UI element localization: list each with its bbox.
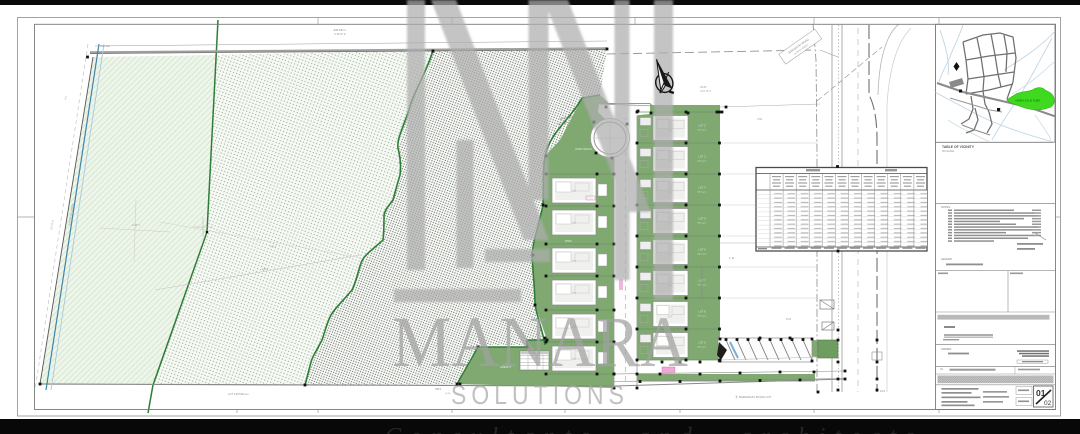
svg-text:180 sq.m.: 180 sq.m. xyxy=(697,316,707,318)
svg-text:46.3: 46.3 xyxy=(65,95,68,100)
svg-text:338.9: 338.9 xyxy=(435,388,442,391)
svg-text:180 sq.m.: 180 sq.m. xyxy=(697,161,707,163)
svg-text:336.58 m.: 336.58 m. xyxy=(333,28,347,32)
svg-text:Consultants and architects: Consultants and architects xyxy=(385,424,923,434)
svg-text:180 sq.m.: 180 sq.m. xyxy=(697,254,707,256)
svg-text:8.00: 8.00 xyxy=(786,317,792,321)
svg-text:02: 02 xyxy=(1044,400,1052,407)
svg-text:245.0: 245.0 xyxy=(262,268,269,271)
svg-text:LOT 2-B PSD-xxx: LOT 2-B PSD-xxx xyxy=(228,392,249,396)
svg-text:Ⓢ BARANGAY ROAD LOT: Ⓢ BARANGAY ROAD LOT xyxy=(735,394,772,399)
svg-text:LOT 9: LOT 9 xyxy=(698,341,706,345)
svg-text:180 sq.m.: 180 sq.m. xyxy=(697,130,707,132)
svg-text:PARK: PARK xyxy=(565,239,572,243)
svg-text:TIE LINE: TIE LINE xyxy=(100,45,110,48)
svg-text:1ST: 1ST xyxy=(572,292,577,295)
svg-text:LOT 8: LOT 8 xyxy=(698,310,706,314)
svg-text:36.80: 36.80 xyxy=(700,85,707,89)
svg-text:4.50: 4.50 xyxy=(757,117,763,121)
svg-text:NO SCALE: NO SCALE xyxy=(942,150,954,153)
svg-text:24.5: 24.5 xyxy=(880,389,886,393)
svg-text:N 88 45' E: N 88 45' E xyxy=(334,33,345,36)
svg-text:LOT 1: LOT 1 xyxy=(132,223,140,227)
svg-text:1ST: 1ST xyxy=(572,260,577,263)
svg-text:OPEN SPACE: OPEN SPACE xyxy=(575,147,592,151)
svg-text:VERBA SOLIS SUBD.: VERBA SOLIS SUBD. xyxy=(1015,99,1041,103)
svg-text:MANARA: MANARA xyxy=(392,302,688,382)
svg-text:LEGEND:: LEGEND: xyxy=(941,257,953,261)
svg-text:LOT 3: LOT 3 xyxy=(698,155,706,159)
svg-text:NOTES:: NOTES: xyxy=(941,205,951,209)
svg-text:TABLE OF VICINITY: TABLE OF VICINITY xyxy=(942,145,975,149)
svg-text:LOT 4: LOT 4 xyxy=(698,186,706,190)
svg-text:180 sq.m.: 180 sq.m. xyxy=(697,223,707,225)
svg-text:S 01 15' E: S 01 15' E xyxy=(700,90,711,93)
svg-text:180 sq.m.: 180 sq.m. xyxy=(697,347,707,349)
svg-text:180 sq.m.: 180 sq.m. xyxy=(697,192,707,194)
svg-text:1ST: 1ST xyxy=(572,222,577,225)
svg-text:182.2: 182.2 xyxy=(270,245,277,249)
svg-text:No.: No. xyxy=(940,368,944,371)
svg-text:EXISTING BARANGAY RD: EXISTING BARANGAY RD xyxy=(700,268,704,300)
svg-text:LOT 6: LOT 6 xyxy=(698,248,706,252)
svg-text:LOT 5: LOT 5 xyxy=(698,217,706,221)
svg-text:SOLUTIONS: SOLUTIONS xyxy=(451,380,629,410)
svg-text:OWNER:: OWNER: xyxy=(941,347,952,351)
svg-text:LOT 2: LOT 2 xyxy=(698,124,706,128)
svg-text:1.11: 1.11 xyxy=(729,256,735,260)
svg-text:1ST: 1ST xyxy=(572,190,577,193)
svg-text:327.25 m: 327.25 m xyxy=(50,220,55,230)
